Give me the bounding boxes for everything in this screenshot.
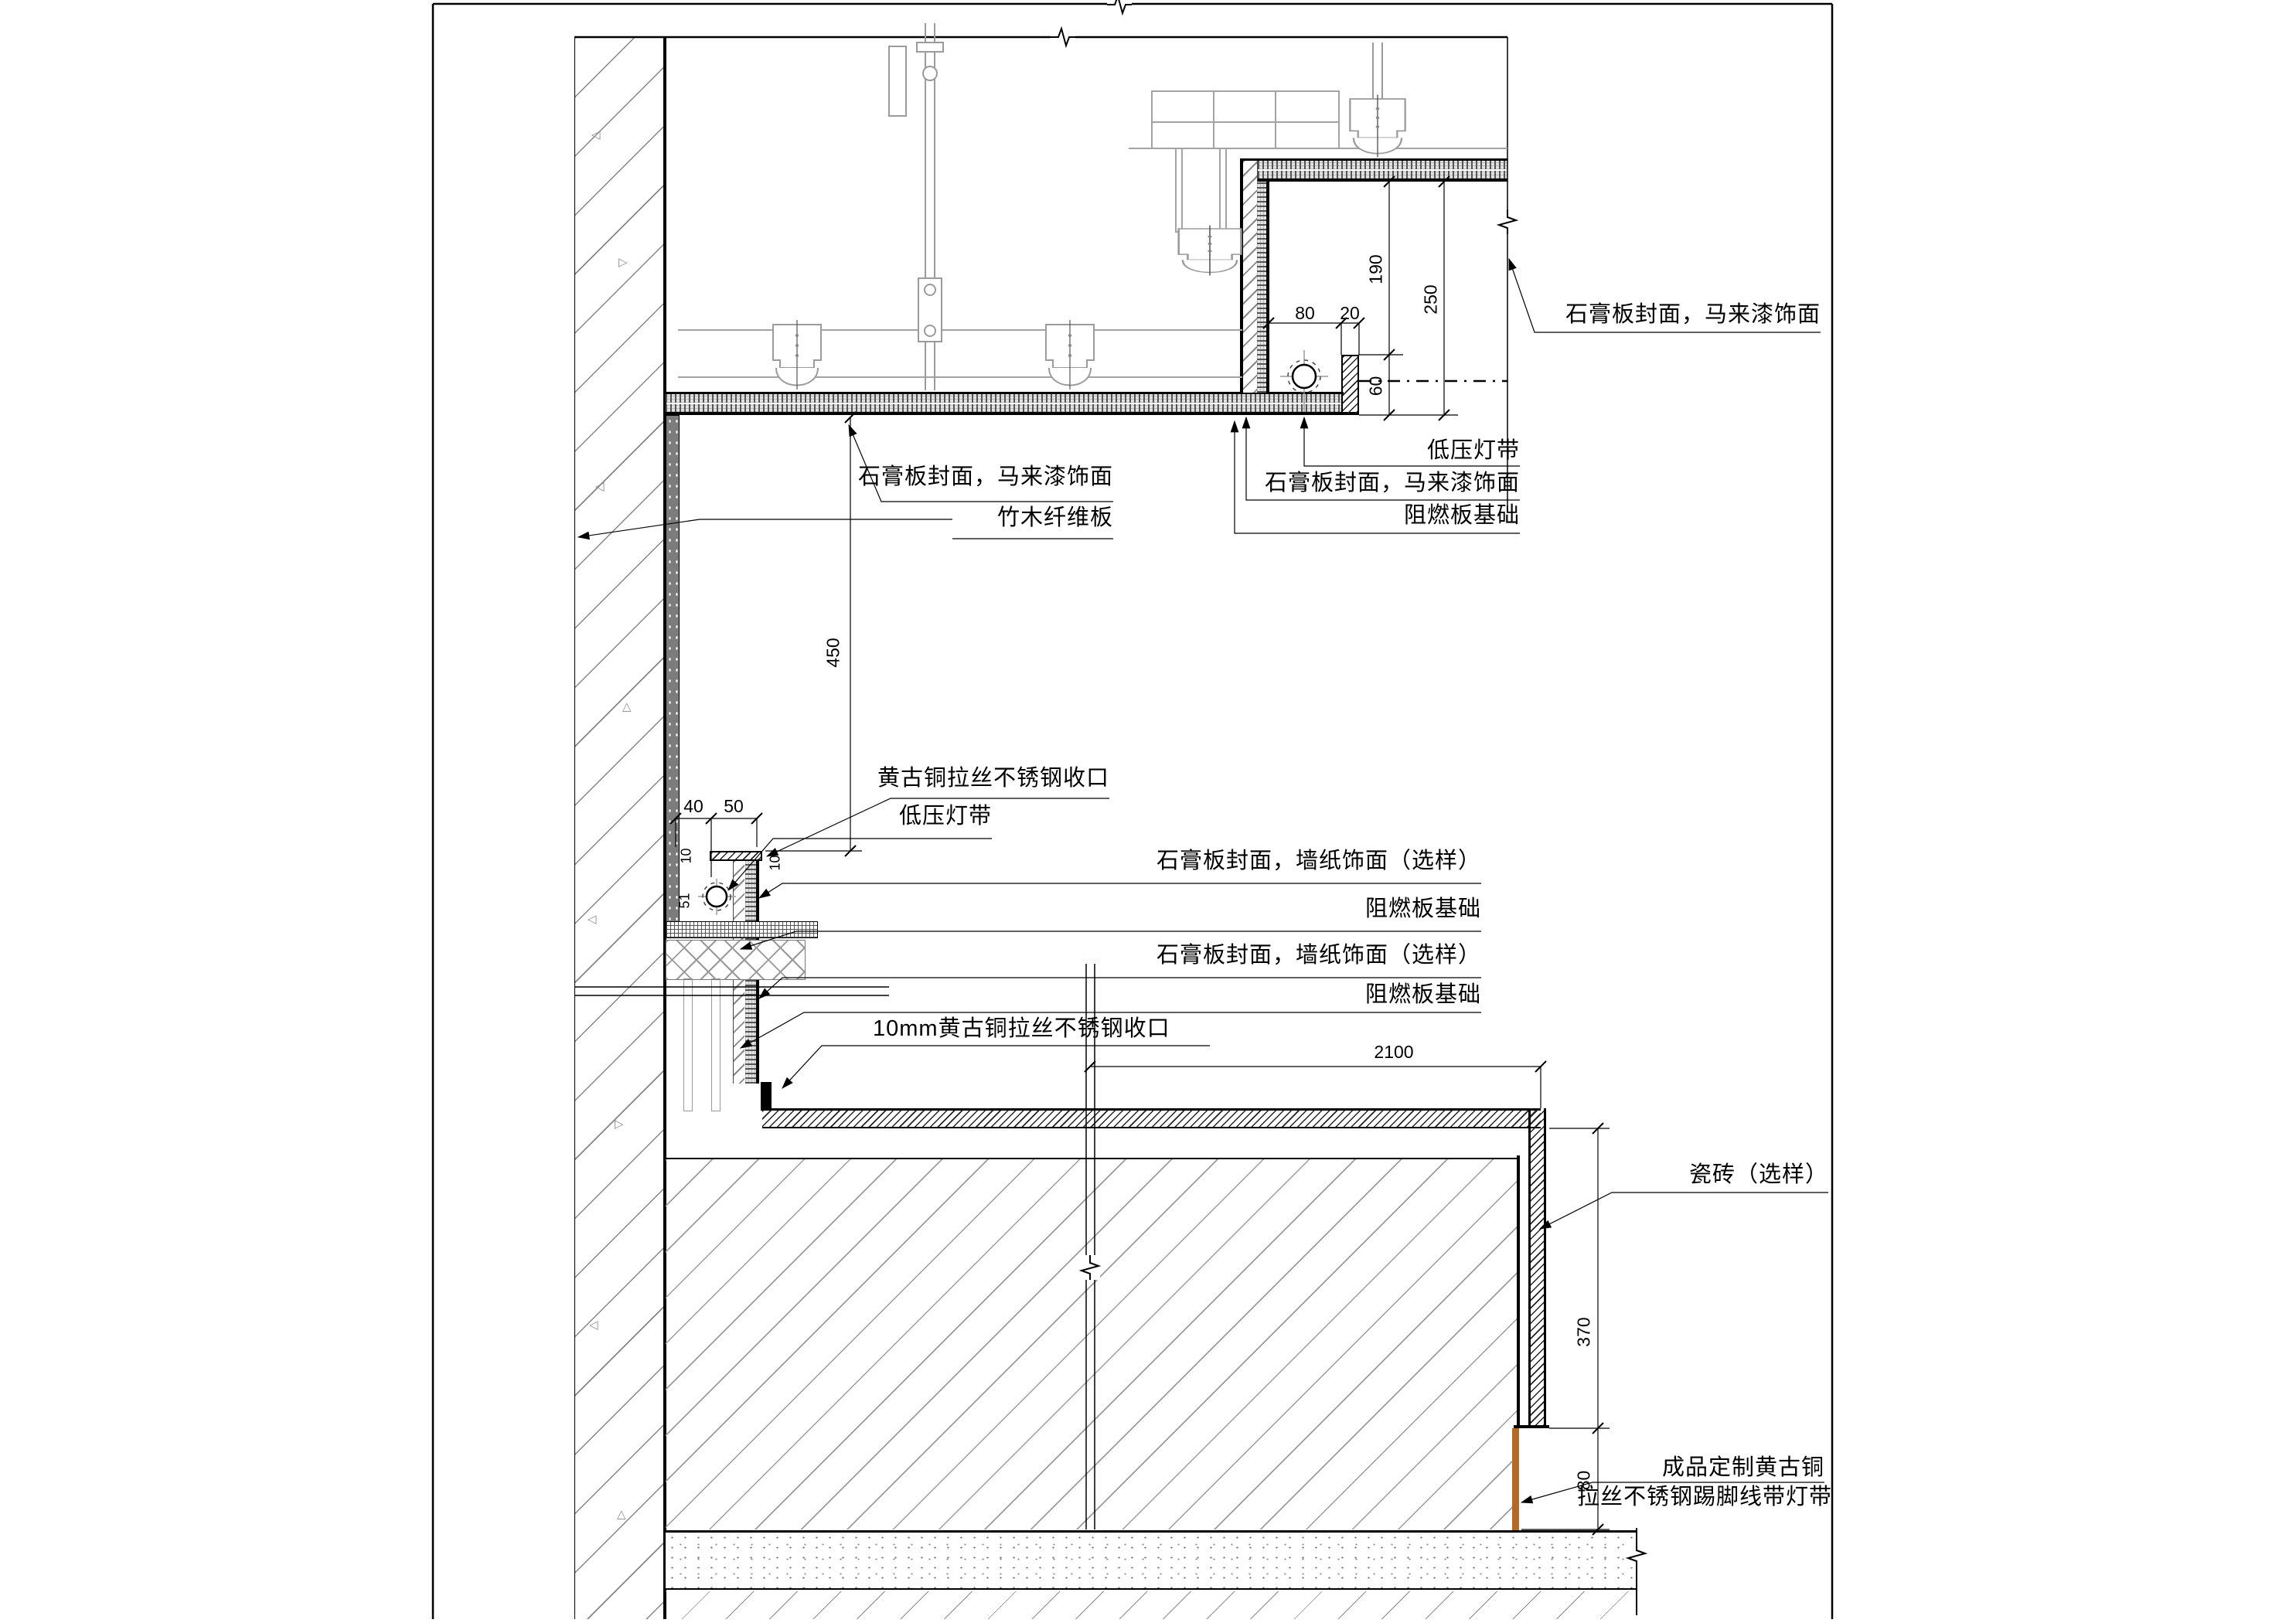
knee-wall-cut-pair [1086, 964, 1095, 1529]
keel-bracket [1350, 95, 1405, 158]
dim-text-20: 20 [1319, 303, 1381, 324]
dim-text-250: 250 [1421, 269, 1442, 331]
dim-text-10-right: 10 [768, 846, 784, 880]
dim-80-20 [1269, 323, 1359, 355]
dim-text-2100: 2100 [1347, 1042, 1440, 1063]
dim-text-51: 51 [677, 884, 693, 918]
keel-bracket [1046, 320, 1094, 390]
label-pocket-board: 石膏板封面，马来漆饰面 [1211, 471, 1520, 496]
drawing-frame [433, 4, 1832, 1619]
linework-layer [0, 0, 2296, 1623]
label-mid-board1: 石膏板封面，墙纸饰面（选样） [1017, 849, 1481, 874]
drawing-canvas: ◁ ▷ ◁ △ ◁ ▷ ◁ △ [0, 0, 2296, 1623]
dim-text-10-left: 10 [679, 839, 695, 873]
label-bamboo-board: 竹木纤维板 [881, 506, 1113, 531]
led-strip-pocket [1280, 350, 1328, 412]
label-tile: 瓷砖（选样） [1596, 1163, 1828, 1188]
keel-bracket [1179, 226, 1242, 276]
label-mid-fr2: 阻燃板基础 [1249, 983, 1481, 1008]
datum-line-pair [574, 987, 889, 995]
label-mid-trim10: 10mm黄古铜拉丝不锈钢收口 [873, 1017, 1170, 1042]
dim-2100 [1090, 1067, 1541, 1108]
led-strip-wall [698, 879, 736, 915]
label-pocket-fr: 阻燃板基础 [1288, 504, 1520, 529]
pocket-hanger-rod [1373, 43, 1382, 100]
dim-text-80-bottom: 80 [1574, 1450, 1595, 1512]
dim-text-50: 50 [703, 796, 765, 817]
label-skirting-1: 成品定制黄古铜 [1593, 1456, 1824, 1481]
label-mid-board2: 石膏板封面，墙纸饰面（选样） [1017, 944, 1481, 968]
label-mid-led: 低压灯带 [760, 805, 992, 829]
label-skirting-2: 拉丝不锈钢踢脚线带灯带 [1577, 1485, 1826, 1510]
dim-text-190: 190 [1366, 239, 1387, 301]
label-mid-trim: 黄古铜拉丝不锈钢收口 [800, 767, 1109, 791]
label-pocket-top: 石膏板封面，马来漆饰面 [1542, 303, 1821, 328]
label-ceiling-left: 石膏板封面，马来漆饰面 [804, 465, 1113, 490]
dim-text-450: 450 [823, 622, 844, 684]
label-mid-fr1: 阻燃板基础 [1249, 897, 1481, 922]
hanger-rod [889, 23, 943, 390]
keel-bracket [773, 320, 821, 390]
dim-text-60: 60 [1366, 356, 1387, 417]
label-pocket-led: 低压灯带 [1288, 439, 1520, 464]
dim-text-370: 370 [1574, 1301, 1595, 1363]
leader-lines [578, 259, 1828, 1502]
